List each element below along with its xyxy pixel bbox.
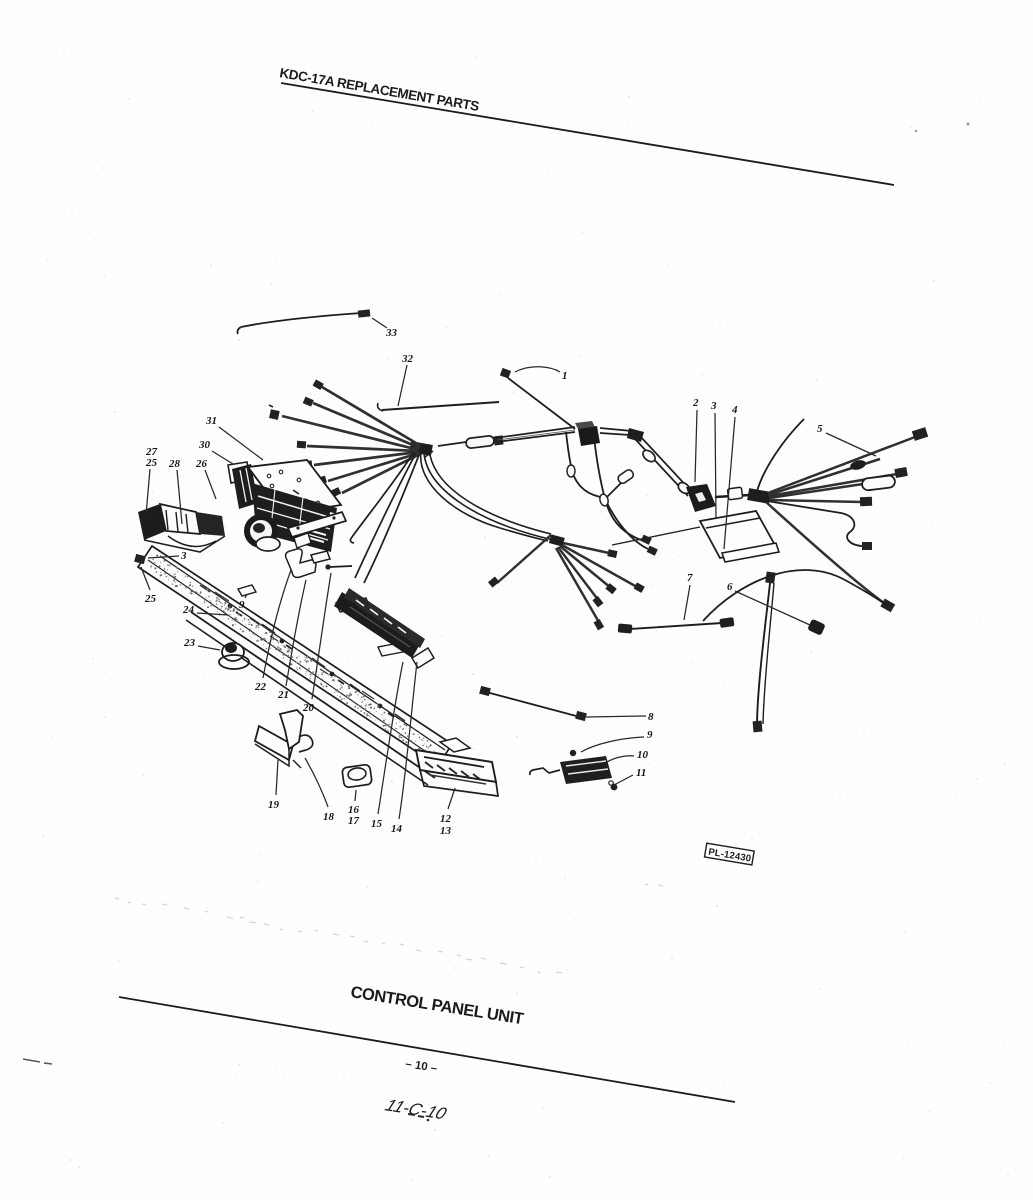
svg-text:25: 25 xyxy=(144,593,157,605)
svg-text:1: 1 xyxy=(562,370,568,382)
svg-text:21: 21 xyxy=(277,689,289,701)
svg-text:33: 33 xyxy=(385,327,398,339)
svg-text:28: 28 xyxy=(168,458,181,470)
svg-text:22: 22 xyxy=(254,681,267,693)
svg-text:9: 9 xyxy=(647,729,653,741)
svg-text:15: 15 xyxy=(371,818,383,830)
svg-text:9: 9 xyxy=(239,599,245,611)
svg-text:2: 2 xyxy=(692,397,699,409)
svg-text:30: 30 xyxy=(198,439,211,451)
svg-text:24: 24 xyxy=(182,604,195,616)
svg-text:5: 5 xyxy=(817,423,823,435)
svg-text:CONTROL PANEL UNIT: CONTROL PANEL UNIT xyxy=(349,983,524,1028)
svg-text:10: 10 xyxy=(637,749,649,761)
svg-text:8: 8 xyxy=(648,711,654,723)
svg-text:– 10 –: – 10 – xyxy=(405,1058,439,1075)
svg-text:12: 12 xyxy=(440,813,452,825)
svg-text:7: 7 xyxy=(687,572,693,584)
svg-text:14: 14 xyxy=(391,823,403,835)
svg-text:3: 3 xyxy=(710,400,717,412)
svg-text:6: 6 xyxy=(727,581,733,593)
svg-text:11: 11 xyxy=(636,767,646,779)
svg-text:25: 25 xyxy=(145,457,158,469)
svg-text:31: 31 xyxy=(205,415,217,427)
svg-text:KDC-17A REPLACEMENT PARTS: KDC-17A REPLACEMENT PARTS xyxy=(278,65,480,114)
svg-text:20: 20 xyxy=(302,702,315,714)
svg-text:3: 3 xyxy=(180,550,187,562)
svg-text:17: 17 xyxy=(348,815,360,827)
svg-text:4: 4 xyxy=(731,404,738,416)
svg-text:13: 13 xyxy=(440,825,452,837)
svg-text:11-C-10: 11-C-10 xyxy=(382,1095,450,1123)
svg-text:18: 18 xyxy=(323,811,335,823)
svg-text:23: 23 xyxy=(183,637,196,649)
svg-text:19: 19 xyxy=(268,799,280,811)
svg-text:32: 32 xyxy=(401,353,414,365)
svg-text:26: 26 xyxy=(195,458,208,470)
